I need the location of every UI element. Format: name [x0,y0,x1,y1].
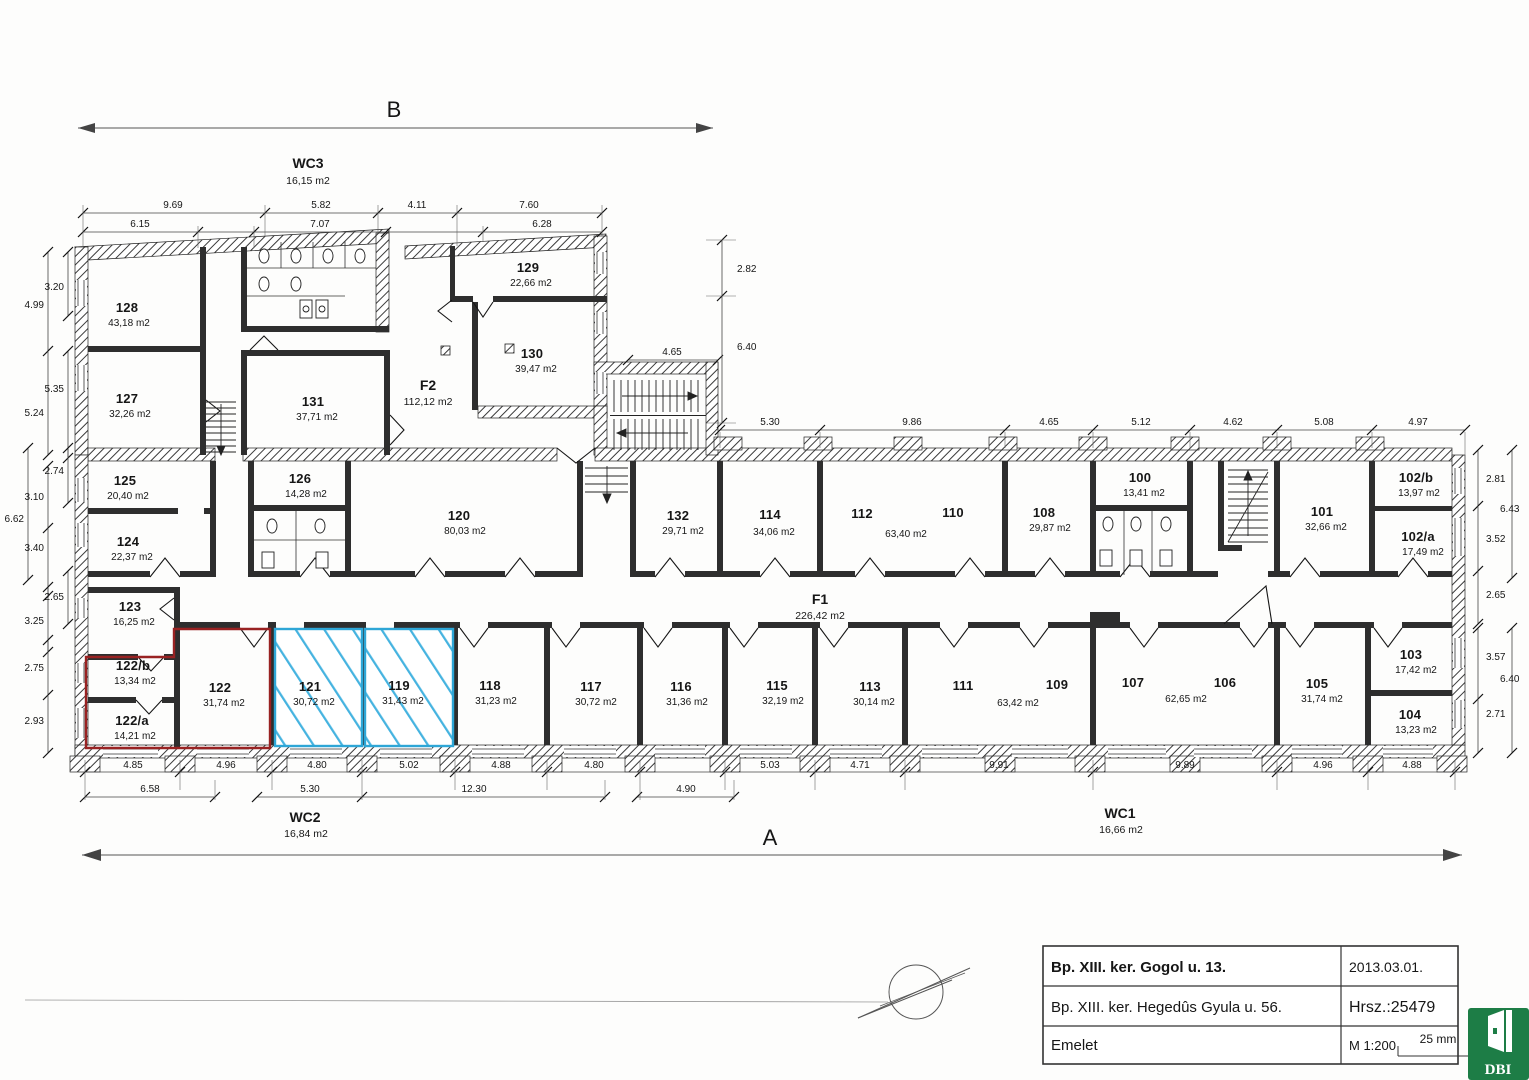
dim-label: 3.52 [1486,534,1506,545]
room-116-area: 31,36 m2 [666,697,708,708]
wc3-fixtures [247,241,376,318]
axis-b-label: B [387,97,402,122]
floor-plan-drawing: WC3 16,15 m2 128 43,18 m2 127 32,26 m2 1… [0,0,1529,1080]
wc3-name: WC3 [292,155,323,171]
f1-name: F1 [812,591,829,607]
room-131-number: 131 [302,394,324,409]
dim-label: 6.58 [140,784,160,795]
wc1-fixtures [1100,511,1172,575]
dim-label: 5.82 [311,200,331,211]
room-124-area: 22,37 m2 [111,552,153,563]
dim-label: 4.88 [491,760,511,771]
room-122b-number: 122/b [116,658,150,673]
dim-label: 5.12 [1131,417,1151,428]
floor-plan-page: WC3 16,15 m2 128 43,18 m2 127 32,26 m2 1… [0,0,1529,1080]
room-129-area: 22,66 m2 [510,278,552,289]
dim-label: 9.86 [902,417,922,428]
room-118-number: 118 [479,678,501,693]
room-113-area: 30,14 m2 [853,697,895,708]
room-120-area: 80,03 m2 [444,526,486,537]
wc2-name: WC2 [289,809,320,825]
wc2-fixtures [254,511,345,575]
dim-label: 6.62 [5,514,25,525]
dbi-logo: DBI [1468,1008,1529,1080]
dim-label: 5.02 [399,760,419,771]
dim-label: 2.65 [1486,590,1506,601]
dim-label: 4.97 [1408,417,1428,428]
dimension-lines [23,205,1517,802]
room-123-number: 123 [119,599,141,614]
dim-label: 3.20 [45,282,65,293]
dim-label: 3.10 [25,492,45,503]
room-118-area: 31,23 m2 [475,696,517,707]
dim-label: 5.30 [760,417,780,428]
room-104-area: 13,23 m2 [1395,725,1437,736]
title-address-2: Bp. XIII. ker. Hegedûs Gyula u. 56. [1051,999,1282,1016]
room-117-number: 117 [580,679,602,694]
axis-b-arrow-left-icon [78,123,95,133]
dim-label: 2.65 [45,592,65,603]
f1-area: 226,42 m2 [795,610,845,622]
dim-label: 4.65 [1039,417,1059,428]
room-106-number: 106 [1214,675,1236,690]
room-102a-area: 17,49 m2 [1402,547,1444,558]
compass [25,965,970,1019]
room-104-number: 104 [1399,707,1422,722]
axis-b-arrow-right-icon [696,123,713,133]
dim-label: 6.15 [130,219,150,230]
wc2-area: 16,84 m2 [284,828,328,840]
title-parcel-number: Hrsz.:25479 [1349,999,1435,1016]
room-127-area: 32,26 m2 [109,409,151,420]
room-100-area: 13,41 m2 [1123,488,1165,499]
stair-west [206,402,236,455]
room-125-number: 125 [114,473,136,488]
dim-label: 2.93 [25,716,45,727]
room-131-area: 37,71 m2 [296,412,338,423]
title-block: Bp. XIII. ker. Gogol u. 13. 2013.03.01. … [1043,946,1478,1064]
room-115-area: 32,19 m2 [762,696,804,707]
room-121-number: 121 [299,679,321,694]
room-130-number: 130 [521,346,543,361]
room-105-area: 31,74 m2 [1301,694,1343,705]
room-102b-number: 102/b [1399,470,1433,485]
room-132-area: 29,71 m2 [662,526,704,537]
dim-label: 5.24 [25,408,45,419]
room-114-area: 34,06 m2 [753,527,795,538]
stair-east [1228,470,1268,542]
dim-label: 5.03 [760,760,780,771]
f2-area: 112,12 m2 [404,396,453,408]
dim-label: 7.07 [310,219,330,230]
dim-label: 4.90 [676,784,696,795]
f2-name: F2 [420,377,437,393]
dim-label: 12.30 [461,784,486,795]
room-132-number: 132 [667,508,689,523]
room-111-number: 111 [953,678,974,693]
dim-label: 4.85 [123,760,143,771]
room-129-number: 129 [517,260,539,275]
room-128-number: 128 [116,300,138,315]
shaft-icon [441,346,450,355]
room-107-number: 107 [1122,675,1144,690]
dim-label: 4.11 [408,200,427,211]
room-109-number: 109 [1046,677,1068,692]
room-102a-number: 102/a [1401,529,1435,544]
dim-label: 7.60 [519,200,539,211]
dim-label: 6.43 [1500,504,1520,515]
title-level: Emelet [1051,1037,1099,1054]
room-122b-area: 13,34 m2 [114,676,156,687]
room-124-number: 124 [117,534,140,549]
dim-label: 6.40 [737,342,757,353]
room-125-area: 20,40 m2 [107,491,149,502]
dim-label: 4.62 [1223,417,1243,428]
dim-label: 9.69 [163,200,183,211]
dim-label: 4.80 [584,760,604,771]
room-130-area: 39,47 m2 [515,364,557,375]
room-115-number: 115 [766,678,788,693]
room-126-number: 126 [289,471,311,486]
wc1-area: 16,66 m2 [1099,824,1143,836]
room-119-area: 31,43 m2 [382,696,424,707]
room-101-number: 101 [1311,504,1333,519]
axis-a-arrow-right-icon [1443,849,1462,861]
title-scale: M 1:200 [1349,1038,1396,1053]
room-122a-area: 14,21 m2 [114,731,156,742]
dim-label: 3.25 [25,616,45,627]
room-121-area: 30,72 m2 [293,697,335,708]
room-102b-area: 13,97 m2 [1398,488,1440,499]
dim-label: 2.74 [45,466,65,477]
room-112-number: 112 [851,506,873,521]
scale-bar-label: 25 mm [1420,1032,1457,1046]
shaft-icon [505,344,514,353]
dim-label: 4.80 [307,760,327,771]
dim-label: 6.28 [532,219,552,230]
dim-label: 4.96 [216,760,236,771]
room-120-number: 120 [448,508,470,523]
room-122-number: 122 [209,680,231,695]
room-103-area: 17,42 m2 [1395,665,1437,676]
dim-label: 2.81 [1486,474,1506,485]
room-122-area: 31,74 m2 [203,698,245,709]
dim-label: 5.35 [45,384,65,395]
room-113-number: 113 [859,679,881,694]
dim-label: 4.88 [1402,760,1422,771]
room-107-106-area: 62,65 m2 [1165,694,1207,705]
room-100-number: 100 [1129,470,1151,485]
dim-label: 3.40 [25,543,45,554]
room-112-110-area: 63,40 m2 [885,529,927,540]
dim-label: 6.40 [1500,674,1520,685]
dbi-logo-text: DBI [1485,1062,1512,1078]
dim-label: 2.82 [737,264,757,275]
room-103-number: 103 [1400,647,1422,662]
room-111-109-area: 63,42 m2 [997,698,1039,709]
entrance-steps [585,466,628,503]
dim-label: 4.71 [850,760,870,771]
dim-label: 2.75 [25,663,45,674]
dim-label: 9.89 [1175,760,1195,771]
room-126-area: 14,28 m2 [285,489,327,500]
dim-label: 2.71 [1486,709,1506,720]
room-110-number: 110 [942,505,964,520]
room-105-number: 105 [1306,676,1328,691]
dim-label: 3.57 [1486,652,1506,663]
dim-label: 9.91 [989,760,1009,771]
wc3-area: 16,15 m2 [286,175,330,187]
stair-north [610,380,706,450]
room-114-number: 114 [759,507,781,522]
wc1-name: WC1 [1104,805,1135,821]
dim-label: 4.65 [662,347,682,358]
dim-label: 5.08 [1314,417,1334,428]
room-127-number: 127 [116,391,138,406]
room-101-area: 32,66 m2 [1305,522,1347,533]
axis-a-arrow-left-icon [82,849,101,861]
axis-a-label: A [763,825,778,850]
room-108-area: 29,87 m2 [1029,523,1071,534]
room-122a-number: 122/a [115,713,149,728]
dim-label: 5.30 [300,784,320,795]
title-date: 2013.03.01. [1349,959,1423,975]
dim-label: 4.99 [25,300,45,311]
title-address-1: Bp. XIII. ker. Gogol u. 13. [1051,959,1226,976]
room-123-area: 16,25 m2 [113,617,155,628]
room-128-area: 43,18 m2 [108,318,150,329]
room-117-area: 30,72 m2 [575,697,617,708]
room-116-number: 116 [670,679,692,694]
room-108-number: 108 [1033,505,1055,520]
dim-label: 4.96 [1313,760,1333,771]
room-119-number: 119 [388,678,410,693]
